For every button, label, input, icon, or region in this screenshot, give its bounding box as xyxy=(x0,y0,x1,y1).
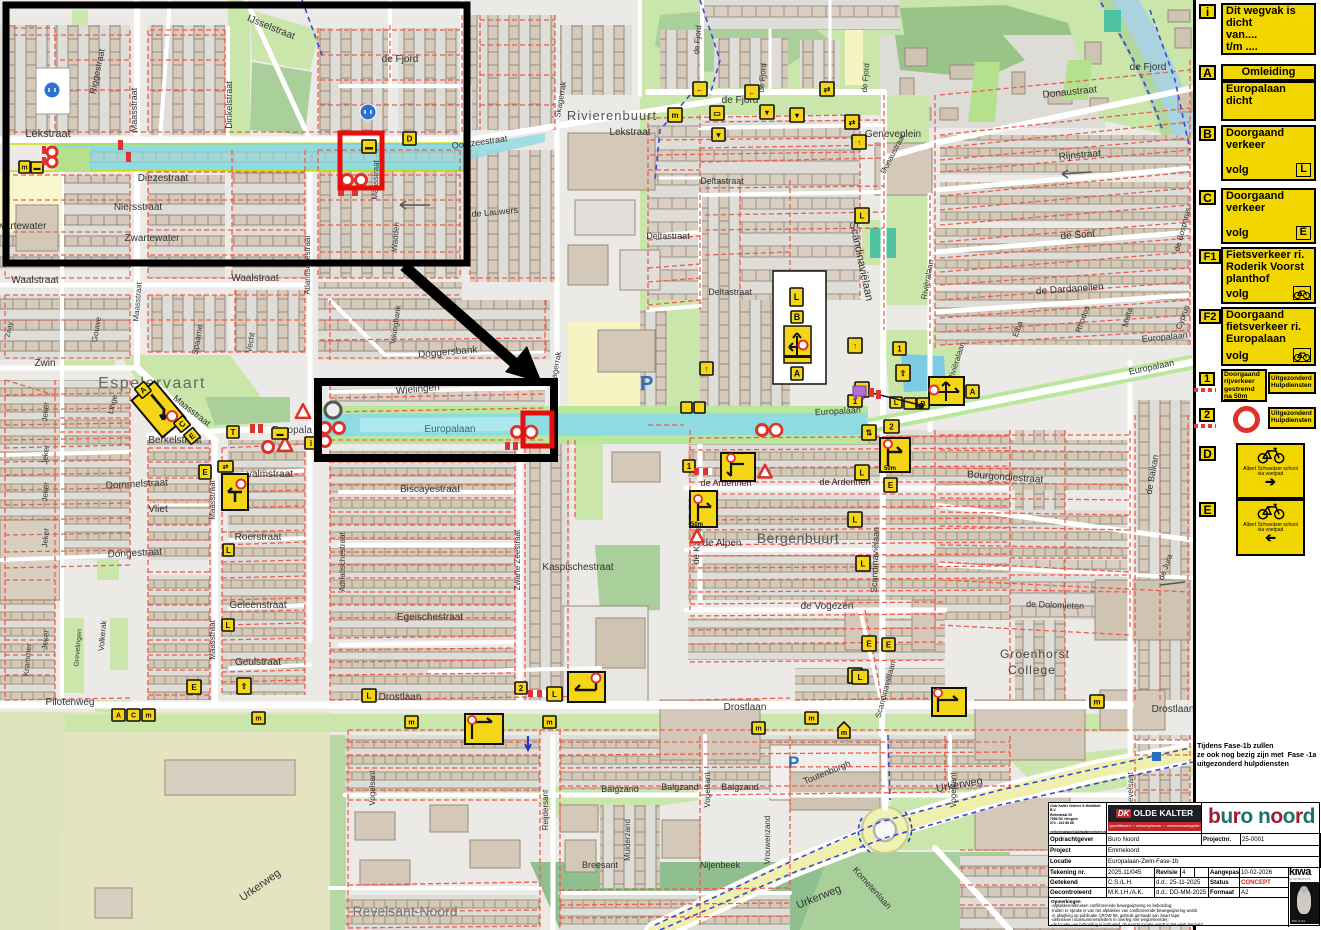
svg-text:A: A xyxy=(970,387,976,396)
svg-text:Vliet: Vliet xyxy=(148,504,168,515)
svg-text:Zwarte Zeestraat: Zwarte Zeestraat xyxy=(513,529,522,590)
svg-text:⇅: ⇅ xyxy=(866,428,873,437)
svg-text:50m: 50m xyxy=(691,522,703,528)
svg-text:Roerstraat: Roerstraat xyxy=(235,532,282,543)
svg-text:⇧: ⇧ xyxy=(900,369,907,378)
svg-text:Lekstraat: Lekstraat xyxy=(609,127,650,138)
svg-text:C: C xyxy=(131,713,136,720)
svg-text:de Dolomieten: de Dolomieten xyxy=(1026,599,1084,611)
svg-text:Dinkelstraat: Dinkelstraat xyxy=(224,81,234,129)
svg-text:1: 1 xyxy=(897,344,902,353)
svg-text:2: 2 xyxy=(889,422,894,431)
svg-text:valmstraat: valmstraat xyxy=(247,469,293,480)
svg-text:E: E xyxy=(888,481,894,490)
svg-text:↑: ↑ xyxy=(705,364,709,373)
svg-text:←: ← xyxy=(696,85,704,94)
svg-text:Vogelsant: Vogelsant xyxy=(703,772,712,808)
svg-text:Balgzand: Balgzand xyxy=(601,784,639,794)
svg-text:Balgzand: Balgzand xyxy=(721,782,759,792)
svg-text:m: m xyxy=(21,165,27,172)
svg-text:L: L xyxy=(858,673,863,682)
svg-text:de Vogezen: de Vogezen xyxy=(801,601,854,612)
svg-text:L: L xyxy=(226,546,231,555)
svg-text:m: m xyxy=(808,716,814,723)
svg-text:T: T xyxy=(231,428,236,437)
svg-text:⇄: ⇄ xyxy=(824,85,831,94)
svg-text:m: m xyxy=(255,716,261,723)
svg-text:▬: ▬ xyxy=(34,165,41,172)
svg-text:Jeker: Jeker xyxy=(40,481,51,502)
svg-text:E: E xyxy=(202,468,208,477)
svg-text:Drostlaan: Drostlaan xyxy=(379,692,422,703)
svg-text:↑: ↑ xyxy=(857,138,861,147)
svg-text:m: m xyxy=(671,111,678,120)
svg-text:⇧: ⇧ xyxy=(241,682,248,691)
svg-text:Drostlaan: Drostlaan xyxy=(724,702,767,713)
svg-text:L: L xyxy=(794,292,800,302)
svg-text:Diezestraat: Diezestraat xyxy=(138,173,189,184)
svg-text:Niersstraat: Niersstraat xyxy=(114,202,163,213)
svg-text:▭: ▭ xyxy=(713,109,721,118)
svg-text:L: L xyxy=(853,515,858,524)
svg-text:L: L xyxy=(860,211,865,220)
svg-text:Nijenbeek: Nijenbeek xyxy=(700,860,741,870)
svg-text:Reijdersant: Reijdersant xyxy=(541,789,550,830)
svg-text:Groenhorst: Groenhorst xyxy=(1000,647,1070,661)
svg-text:B: B xyxy=(794,312,801,322)
svg-text:A: A xyxy=(794,369,801,379)
svg-text:Maasstraat: Maasstraat xyxy=(129,87,139,132)
svg-text:Deltastraat: Deltastraat xyxy=(646,231,690,241)
svg-text:de Fjord: de Fjord xyxy=(1130,62,1167,73)
svg-text:i: i xyxy=(310,439,312,448)
svg-text:Drostlaan: Drostlaan xyxy=(1152,704,1193,715)
svg-text:L: L xyxy=(894,400,899,407)
svg-text:Waalstraat: Waalstraat xyxy=(231,273,279,284)
svg-text:Deltastraat: Deltastraat xyxy=(708,287,752,297)
svg-text:Jeker: Jeker xyxy=(40,444,51,465)
svg-text:Muiderzand: Muiderzand xyxy=(623,819,632,861)
svg-text:m: m xyxy=(546,720,552,727)
svg-text:Geneveplein: Geneveplein xyxy=(865,129,921,140)
svg-text:L: L xyxy=(367,691,372,700)
svg-text:m: m xyxy=(1093,697,1100,706)
svg-text:E: E xyxy=(866,639,872,648)
svg-text:Maasstraat: Maasstraat xyxy=(208,479,217,519)
svg-text:L: L xyxy=(552,690,557,699)
svg-text:←: ← xyxy=(748,88,756,97)
svg-text:E: E xyxy=(191,683,197,692)
svg-text:Breesant: Breesant xyxy=(582,860,619,870)
svg-text:Jeker: Jeker xyxy=(40,401,51,422)
svg-text:de Fjord: de Fjord xyxy=(382,54,419,65)
svg-text:Jeker: Jeker xyxy=(40,629,51,650)
svg-text:Zwartewater: Zwartewater xyxy=(124,233,180,244)
svg-text:50m: 50m xyxy=(884,466,896,472)
svg-text:▬: ▬ xyxy=(277,431,284,438)
svg-text:Lekstraat: Lekstraat xyxy=(25,128,70,140)
svg-text:Vogelsant: Vogelsant xyxy=(368,770,377,806)
svg-text:L: L xyxy=(861,559,866,568)
svg-text:E: E xyxy=(886,640,892,649)
svg-text:Balgzand: Balgzand xyxy=(661,782,699,792)
svg-text:P: P xyxy=(788,753,799,772)
svg-text:L: L xyxy=(860,468,865,477)
svg-text:▬: ▬ xyxy=(365,142,373,151)
svg-text:Rivierenbuurt: Rivierenbuurt xyxy=(567,108,657,123)
svg-text:Revelsant-Noord: Revelsant-Noord xyxy=(352,903,457,919)
svg-text:Biscayestraat: Biscayestraat xyxy=(400,484,460,495)
svg-text:Geulstraat: Geulstraat xyxy=(235,657,281,668)
svg-text:1: 1 xyxy=(687,462,692,471)
svg-text:de Alpen: de Alpen xyxy=(703,538,742,549)
svg-text:Zwin: Zwin xyxy=(34,358,55,369)
svg-text:Kaspischestraat: Kaspischestraat xyxy=(542,562,613,573)
svg-text:Geleenstraat: Geleenstraat xyxy=(229,600,286,611)
svg-text:Deltastraat: Deltastraat xyxy=(700,176,744,186)
svg-text:L: L xyxy=(226,621,231,630)
svg-text:2: 2 xyxy=(519,684,524,693)
svg-text:Jeker: Jeker xyxy=(40,527,51,548)
svg-text:m: m xyxy=(145,713,151,720)
svg-text:College: College xyxy=(1008,663,1056,677)
svg-text:D: D xyxy=(407,134,413,143)
svg-text:Maasstraat: Maasstraat xyxy=(370,159,380,200)
svg-text:Europalaan: Europalaan xyxy=(424,424,475,435)
svg-text:⇄: ⇄ xyxy=(223,463,229,471)
svg-text:↑: ↑ xyxy=(853,341,857,350)
svg-text:m: m xyxy=(408,720,414,727)
svg-text:Egeischestraat: Egeischestraat xyxy=(397,612,463,623)
svg-text:m: m xyxy=(755,726,761,733)
svg-text:Maasstraat: Maasstraat xyxy=(208,619,217,659)
svg-text:Bergenbuurt: Bergenbuurt xyxy=(757,530,840,546)
svg-text:Vrouwenzand: Vrouwenzand xyxy=(763,816,772,865)
svg-text:Adriatischestraat: Adriatischestraat xyxy=(338,531,347,591)
svg-text:Pilotenweg: Pilotenweg xyxy=(46,697,95,708)
svg-text:P: P xyxy=(640,373,653,395)
svg-text:m: m xyxy=(841,730,847,737)
svg-text:A: A xyxy=(116,713,121,720)
svg-text:Waalstraat: Waalstraat xyxy=(11,275,59,286)
svg-text:⇄: ⇄ xyxy=(849,118,856,127)
